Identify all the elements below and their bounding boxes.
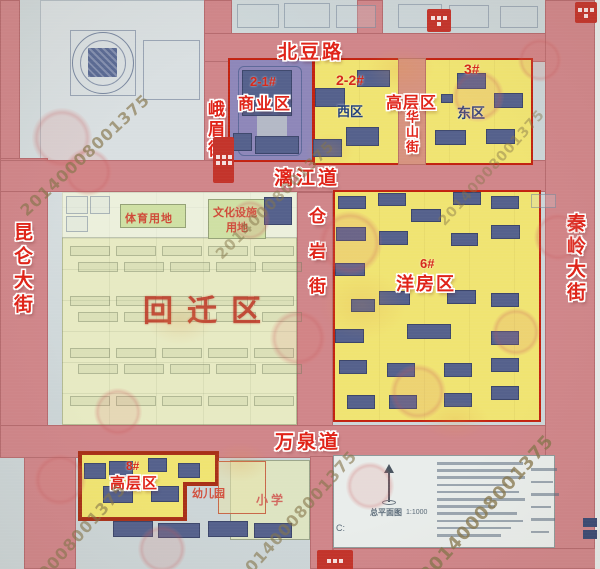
building-relocation-faint — [162, 348, 202, 358]
highrise8-code: 8# — [126, 459, 139, 473]
scan-smudge — [210, 442, 270, 482]
building-villa — [491, 358, 519, 372]
road-kunlun-label: 昆仑大街 — [8, 222, 35, 318]
seal-stamp-mark — [34, 454, 86, 506]
seal-stamp-mark — [346, 462, 394, 510]
seal-stamp-mark — [94, 388, 142, 436]
building-relocation-faint — [254, 246, 294, 256]
legend-note-prefix: C: — [336, 523, 345, 533]
building-villa — [407, 324, 451, 339]
legend-note-line — [531, 506, 551, 509]
road-bottom — [333, 548, 600, 569]
building-relocation-faint — [170, 364, 210, 374]
building-relocation-faint — [216, 262, 256, 272]
building-relocation-faint — [254, 396, 294, 406]
road-left-edge — [0, 0, 20, 170]
building-top_strip — [237, 4, 279, 28]
building-villa — [451, 233, 478, 246]
site-watermark-logo-4 — [213, 137, 234, 183]
kindergarten-label: 幼儿园 — [192, 485, 225, 501]
building-relocation-faint — [70, 296, 110, 306]
commercial-label: 商业区 — [238, 90, 292, 114]
building-villa — [339, 360, 367, 374]
building-left_boxes — [90, 196, 110, 214]
building-villa — [491, 293, 519, 307]
scan-smudge — [145, 295, 215, 345]
villa-code: 6# — [420, 256, 434, 271]
building-relocation-faint — [170, 262, 210, 272]
building-villa — [444, 363, 472, 377]
building-villa — [491, 196, 519, 209]
site-watermark-logo-3 — [317, 550, 353, 569]
legend-scale: 1:1000 — [406, 509, 427, 516]
building-commercial — [233, 133, 252, 151]
legend-note-line — [531, 481, 553, 484]
seal-stamp-mark — [270, 310, 326, 366]
seal-stamp-mark — [518, 38, 562, 82]
seal-stamp-mark — [534, 213, 582, 261]
building-relocation-faint — [162, 396, 202, 406]
building-left_boxes — [531, 194, 556, 208]
emblem-side-box — [143, 40, 200, 100]
building-left_boxes — [66, 196, 88, 214]
legend-note-line — [531, 518, 555, 521]
building-top_strip — [336, 5, 376, 28]
building-relocation-faint — [262, 262, 302, 272]
building-left_boxes — [66, 216, 88, 232]
site-watermark-logo-2 — [575, 2, 597, 23]
legend-mini-box-2 — [583, 530, 597, 539]
building-relocation-faint — [216, 364, 256, 374]
building-east_block — [435, 130, 466, 145]
seal-stamp-mark — [138, 525, 186, 569]
page-margin — [595, 0, 600, 569]
legend-note-line — [531, 531, 549, 534]
seal-stamp-mark — [390, 364, 446, 420]
villa-label: 洋房区 — [396, 270, 456, 296]
west-label: 西区 — [337, 101, 363, 120]
scan-smudge — [317, 270, 407, 340]
site-watermark-logo-1 — [427, 9, 451, 32]
legend-note-line — [437, 462, 523, 465]
building-relocation-faint — [78, 364, 118, 374]
emblem-core — [88, 48, 117, 77]
building-highrise8 — [178, 463, 200, 478]
building-relocation-faint — [116, 246, 156, 256]
building-relocation-faint — [78, 312, 118, 322]
building-relocation-faint — [162, 246, 202, 256]
building-villa — [491, 225, 520, 239]
building-commercial — [255, 136, 299, 154]
building-top_strip — [449, 5, 489, 28]
seal-stamp-mark — [318, 211, 382, 275]
building-relocation-faint — [70, 348, 110, 358]
building-villa — [491, 386, 519, 400]
building-villa — [379, 231, 408, 245]
building-villa — [347, 395, 375, 409]
road-beidou-label: 北豆路 — [278, 37, 344, 64]
building-relocation-faint — [78, 262, 118, 272]
sports-land-label: 体育用地 — [125, 210, 173, 226]
building-relocation-faint — [70, 246, 110, 256]
building-relocation-faint — [124, 364, 164, 374]
road-wanquan-label: 万泉道 — [275, 427, 341, 454]
road-huashan-label: 华山街 — [402, 110, 421, 155]
seal-stamp-mark — [492, 308, 540, 356]
building-top_strip — [284, 3, 330, 28]
commercial-code: 2-1# — [250, 74, 276, 89]
building-top_strip — [500, 6, 538, 28]
building-relocation-faint — [116, 348, 156, 358]
building-relocation-faint — [124, 262, 164, 272]
building-highrise8 — [148, 458, 167, 472]
building-highrise8 — [84, 463, 106, 479]
building-bottom_strip — [208, 521, 248, 537]
seal-stamp-mark — [452, 70, 504, 122]
highrise-code: 2-2# — [336, 72, 364, 88]
building-villa — [338, 196, 366, 209]
legend-mini-box-1 — [583, 518, 597, 527]
building-relocation-faint — [208, 348, 248, 358]
scan-smudge — [365, 46, 435, 91]
building-villa — [378, 193, 406, 206]
site-plan-map: 2-1# 商业区 2-2# 高层区 西区 3# 东区 华山街 体育用地 文化设施… — [0, 0, 600, 569]
legend-note-line — [531, 493, 559, 496]
legend-note-line — [437, 469, 515, 472]
building-relocation-faint — [208, 396, 248, 406]
school-label: 小学 — [256, 491, 286, 508]
